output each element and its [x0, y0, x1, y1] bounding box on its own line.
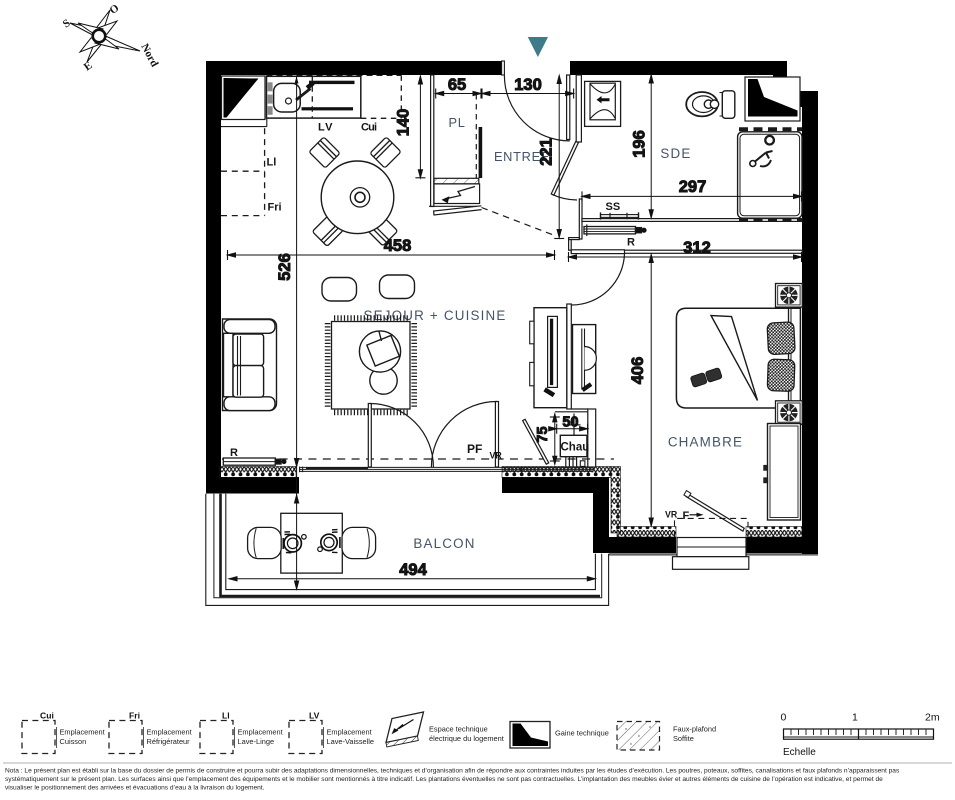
svg-text:1: 1	[852, 712, 858, 724]
svg-text:Cui: Cui	[40, 711, 54, 721]
svg-text:R: R	[627, 237, 635, 249]
svg-text:Cui: Cui	[361, 122, 377, 134]
svg-text:Fri: Fri	[268, 202, 282, 214]
svg-text:F: F	[683, 510, 690, 522]
svg-text:Ll: Ll	[222, 711, 230, 721]
svg-text:50: 50	[562, 415, 578, 431]
svg-text:Ll: Ll	[267, 157, 277, 169]
svg-text:65: 65	[448, 76, 466, 94]
svg-text:BALCON: BALCON	[413, 536, 475, 551]
svg-text:CHAMBRE: CHAMBRE	[668, 435, 743, 450]
svg-text:Gaine technique: Gaine technique	[555, 729, 609, 738]
svg-text:Nota : Le présent plan est éta: Nota : Le présent plan est établi sur la…	[5, 768, 900, 775]
svg-text:494: 494	[399, 561, 427, 579]
svg-text:312: 312	[683, 239, 711, 257]
svg-text:PF: PF	[467, 442, 482, 456]
svg-text:VR: VR	[490, 451, 503, 461]
svg-text:Fri: Fri	[129, 711, 140, 721]
svg-text:Emplacement: Emplacement	[238, 728, 283, 737]
svg-text:140: 140	[395, 109, 413, 137]
svg-text:75: 75	[535, 426, 551, 442]
svg-text:SEJOUR + CUISINE: SEJOUR + CUISINE	[363, 308, 506, 323]
svg-text:221: 221	[538, 138, 556, 166]
svg-text:Faux-plafond: Faux-plafond	[673, 725, 716, 734]
svg-text:Emplacement: Emplacement	[60, 728, 105, 737]
svg-text:SDE: SDE	[660, 146, 691, 161]
svg-text:458: 458	[384, 237, 412, 255]
svg-text:électrique du logement: électrique du logement	[429, 734, 504, 743]
svg-text:Soffite: Soffite	[673, 734, 694, 743]
svg-text:Espace technique: Espace technique	[429, 725, 488, 734]
svg-text:Echelle: Echelle	[783, 747, 816, 758]
svg-text:SS: SS	[606, 201, 621, 213]
svg-text:2m: 2m	[925, 712, 940, 724]
svg-text:Chau: Chau	[561, 442, 590, 454]
svg-text:526: 526	[276, 253, 294, 281]
svg-text:Cuisson: Cuisson	[60, 737, 87, 746]
svg-text:Réfrigérateur: Réfrigérateur	[147, 737, 191, 746]
svg-text:Lave-Vaisselle: Lave-Vaisselle	[327, 737, 375, 746]
svg-text:406: 406	[629, 357, 647, 385]
svg-text:R: R	[230, 447, 238, 459]
svg-text:130: 130	[514, 76, 542, 94]
svg-text:visualiser le positionnement d: visualiser le positionnement des arrivée…	[5, 785, 265, 792]
svg-text:Emplacement: Emplacement	[147, 728, 192, 737]
svg-text:196: 196	[631, 130, 649, 158]
svg-text:systématiquement sur le présen: systématiquement sur le présent plan. Le…	[5, 776, 883, 783]
svg-text:PL: PL	[448, 115, 465, 130]
svg-text:0: 0	[781, 712, 787, 724]
svg-text:LV: LV	[309, 711, 320, 721]
svg-text:Emplacement: Emplacement	[327, 728, 372, 737]
svg-text:VR: VR	[665, 510, 678, 520]
svg-text:Lave-Linge: Lave-Linge	[238, 737, 275, 746]
svg-text:LV: LV	[318, 122, 333, 134]
svg-text:297: 297	[679, 178, 707, 196]
